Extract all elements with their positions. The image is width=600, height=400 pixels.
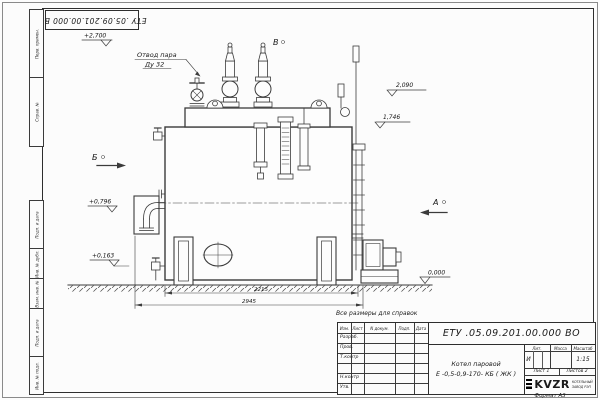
scale-label: Масштаб: [571, 346, 595, 351]
svg-text:+2,700: +2,700: [84, 33, 106, 40]
lit-value: И: [524, 356, 533, 363]
company-logo: KVZR: [534, 378, 569, 391]
col-doc: N докум.: [364, 326, 395, 331]
logo-bars-icon: [526, 379, 532, 390]
svg-text:+0,163: +0,163: [92, 253, 114, 260]
format-note: Формат А3: [500, 393, 600, 399]
lit-label: Лит.: [524, 346, 550, 351]
safety-valve-1: [221, 43, 239, 107]
mass-label: Масса: [550, 346, 571, 351]
row-prov: Пров.: [340, 345, 364, 350]
dim-2945-text: 2945: [242, 299, 256, 305]
col-list: Лист: [351, 326, 364, 331]
scale-value: 1:15: [571, 356, 595, 363]
dim-2215-text: 2215: [254, 287, 268, 293]
elevation-2700: +2,700: [82, 33, 112, 47]
svg-text:1,746: 1,746: [383, 114, 400, 121]
elevation-1746: 1,746: [375, 114, 410, 128]
sheet-cell: Лист 1: [524, 369, 559, 374]
elevation-0163: +0,163: [90, 253, 129, 267]
row-tkontr: Т.контр: [340, 355, 364, 360]
row-razrab: Разраб.: [340, 335, 364, 340]
burner-elbow-box: [134, 196, 165, 234]
svg-text:2,090: 2,090: [396, 82, 413, 89]
header-pin-and-ring: [338, 84, 350, 117]
product-name: Котел паровой Е -0,5-0,9-170- КБ ( ЖК ): [428, 344, 524, 394]
svg-text:В: В: [273, 38, 279, 47]
sheets-cell: Листов 2: [559, 369, 595, 374]
col-izm: Изм.: [338, 326, 351, 331]
title-block: Изм. Лист N докум. Подп. Дата Разраб. Пр…: [337, 322, 596, 395]
col-podp: Подп.: [395, 326, 414, 331]
svg-text:Ду 32: Ду 32: [144, 61, 164, 69]
safety-valve-2: [254, 43, 272, 107]
elevation-0000: 0,000: [420, 270, 450, 284]
row-nkontr: Н.контр: [340, 375, 364, 380]
svg-text:+0,796: +0,796: [89, 199, 111, 206]
blower-unit: [352, 234, 401, 283]
svg-text:А: А: [432, 198, 438, 207]
product-name-line2: Е -0,5-0,9-170- КБ ( ЖК ): [436, 371, 516, 378]
ground-line: [68, 285, 432, 292]
view-ref-mark: [442, 200, 445, 203]
svg-text:Отвод пара: Отвод пара: [137, 51, 177, 59]
company-name: КОТЕЛЬНЫЙ ЗАВОД РЭП: [572, 380, 593, 388]
steam-outlet-valve: [190, 78, 204, 106]
product-name-line1: Котел паровой: [451, 361, 500, 368]
title-doc-number: ЕТУ .05.09.201.00.000 ВО: [428, 323, 595, 344]
svg-text:Б: Б: [92, 153, 98, 162]
col-data: Дата: [414, 326, 428, 331]
stack-fitting: [353, 46, 359, 150]
view-ref-mark: [101, 155, 104, 158]
view-arrow-v: В: [273, 38, 285, 47]
drawing-sheet: ЕТУ .05.09.201.00.000 ВО Перв. примен. С…: [0, 0, 600, 400]
view-arrow-b: Б: [92, 153, 126, 169]
reference-note: Все размеры для справок: [336, 310, 417, 317]
svg-text:0,000: 0,000: [428, 270, 445, 277]
elevation-2090: 2,090: [387, 82, 426, 96]
elevation-0796: +0,796: [88, 199, 117, 213]
steam-outlet-callout: Отвод пара Ду 32: [135, 51, 201, 77]
view-arrow-a: А: [420, 198, 447, 216]
company-cell: KVZR КОТЕЛЬНЫЙ ЗАВОД РЭП: [524, 375, 595, 394]
row-utv: Утв.: [340, 385, 364, 390]
view-ref-mark: [281, 40, 284, 43]
